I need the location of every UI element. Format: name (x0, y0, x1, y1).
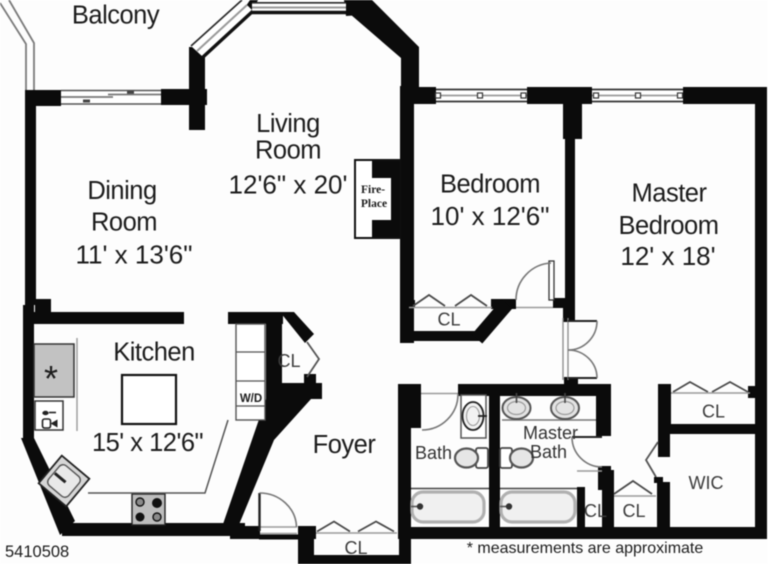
svg-text:*: * (44, 358, 58, 399)
svg-text:5410508: 5410508 (5, 543, 69, 561)
svg-text:CL: CL (277, 351, 300, 371)
svg-text:Bedroom: Bedroom (619, 212, 719, 240)
svg-text:10' x 12'6": 10' x 12'6" (431, 201, 550, 231)
svg-text:Room: Room (255, 137, 321, 165)
svg-text:15' x 12'6": 15' x 12'6" (92, 429, 203, 457)
svg-text:Bath: Bath (415, 443, 452, 463)
svg-text:CL: CL (584, 501, 607, 521)
svg-text:CL: CL (622, 501, 645, 521)
svg-text:* measurements are approximate: * measurements are approximate (467, 540, 704, 557)
svg-text:CL: CL (437, 310, 460, 330)
svg-text:Bath: Bath (530, 442, 567, 462)
svg-text:Living: Living (256, 110, 320, 138)
svg-text:Master: Master (523, 423, 578, 443)
svg-text:Bedroom: Bedroom (440, 171, 540, 199)
svg-text:Fire-: Fire- (361, 184, 385, 196)
svg-text:WIC: WIC (689, 473, 724, 493)
svg-text:Kitchen: Kitchen (113, 339, 195, 367)
svg-text:12' x 18': 12' x 18' (620, 241, 715, 271)
svg-text:Foyer: Foyer (313, 431, 377, 459)
svg-text:W/D: W/D (240, 393, 262, 405)
svg-text:CL: CL (702, 402, 725, 422)
svg-text:Master: Master (632, 180, 708, 208)
svg-text:12'6" x 20': 12'6" x 20' (229, 170, 348, 200)
svg-text:11' x 13'6": 11' x 13'6" (76, 240, 193, 270)
svg-text:Place: Place (361, 198, 387, 210)
svg-text:Room: Room (91, 209, 157, 237)
svg-text:CL: CL (344, 538, 367, 558)
svg-text:Balcony: Balcony (72, 2, 160, 30)
svg-text:Dining: Dining (87, 177, 156, 205)
